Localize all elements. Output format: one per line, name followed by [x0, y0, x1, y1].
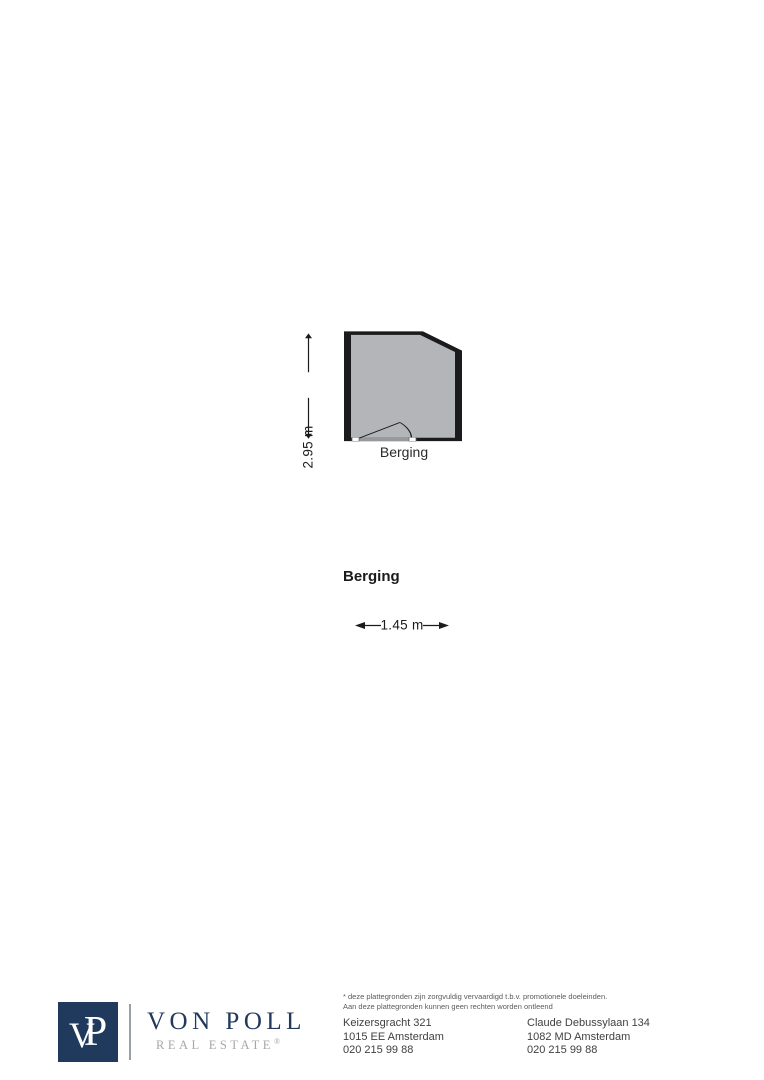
- office-address-amsterdam-debussylaan: Claude Debussylaan 134 1082 MD Amsterdam…: [527, 1017, 650, 1058]
- floorplan-page: 2.95 m Berging Berging 1.45 m V P VON PO…: [0, 0, 764, 1080]
- dim-arrow-up: [305, 333, 312, 338]
- disclaimer: * deze plattegronden zijn zorgvuldig ver…: [343, 992, 607, 1011]
- dim-arrow-right: [439, 622, 449, 629]
- office-phone: 020 215 99 88: [527, 1044, 650, 1058]
- vertical-dimension-label: 2.95 m: [301, 425, 316, 468]
- floorplan-drawing: [285, 325, 480, 640]
- door-jamb-right: [409, 437, 416, 441]
- room-outline: [348, 333, 459, 439]
- office-street: Keizersgracht 321: [343, 1017, 444, 1031]
- office-city: 1015 EE Amsterdam: [343, 1031, 444, 1045]
- registered-trademark-symbol: ®: [274, 1037, 280, 1046]
- brand-tagline: REAL ESTATE®: [156, 1037, 280, 1053]
- logo-divider: [129, 1004, 131, 1060]
- office-street: Claude Debussylaan 134: [527, 1017, 650, 1031]
- office-phone: 020 215 99 88: [343, 1044, 444, 1058]
- brand-tagline-text: REAL ESTATE: [156, 1038, 274, 1052]
- office-city: 1082 MD Amsterdam: [527, 1031, 650, 1045]
- door-jamb-left: [352, 437, 359, 441]
- vonpoll-logo-mark: V P: [58, 1002, 118, 1062]
- horizontal-dimension-label: 1.45 m: [380, 618, 423, 633]
- logo-monogram-v: V: [69, 1017, 95, 1053]
- plan-title: Berging: [343, 568, 400, 585]
- brand-name: VON POLL: [147, 1008, 306, 1036]
- office-address-amsterdam-keizersgracht: Keizersgracht 321 1015 EE Amsterdam 020 …: [343, 1017, 444, 1058]
- dim-arrow-left: [355, 622, 365, 629]
- room-label: Berging: [380, 444, 428, 460]
- disclaimer-line-1: * deze plattegronden zijn zorgvuldig ver…: [343, 992, 607, 1002]
- door-threshold: [352, 438, 416, 441]
- disclaimer-line-2: Aan deze plattegronden kunnen geen recht…: [343, 1002, 607, 1012]
